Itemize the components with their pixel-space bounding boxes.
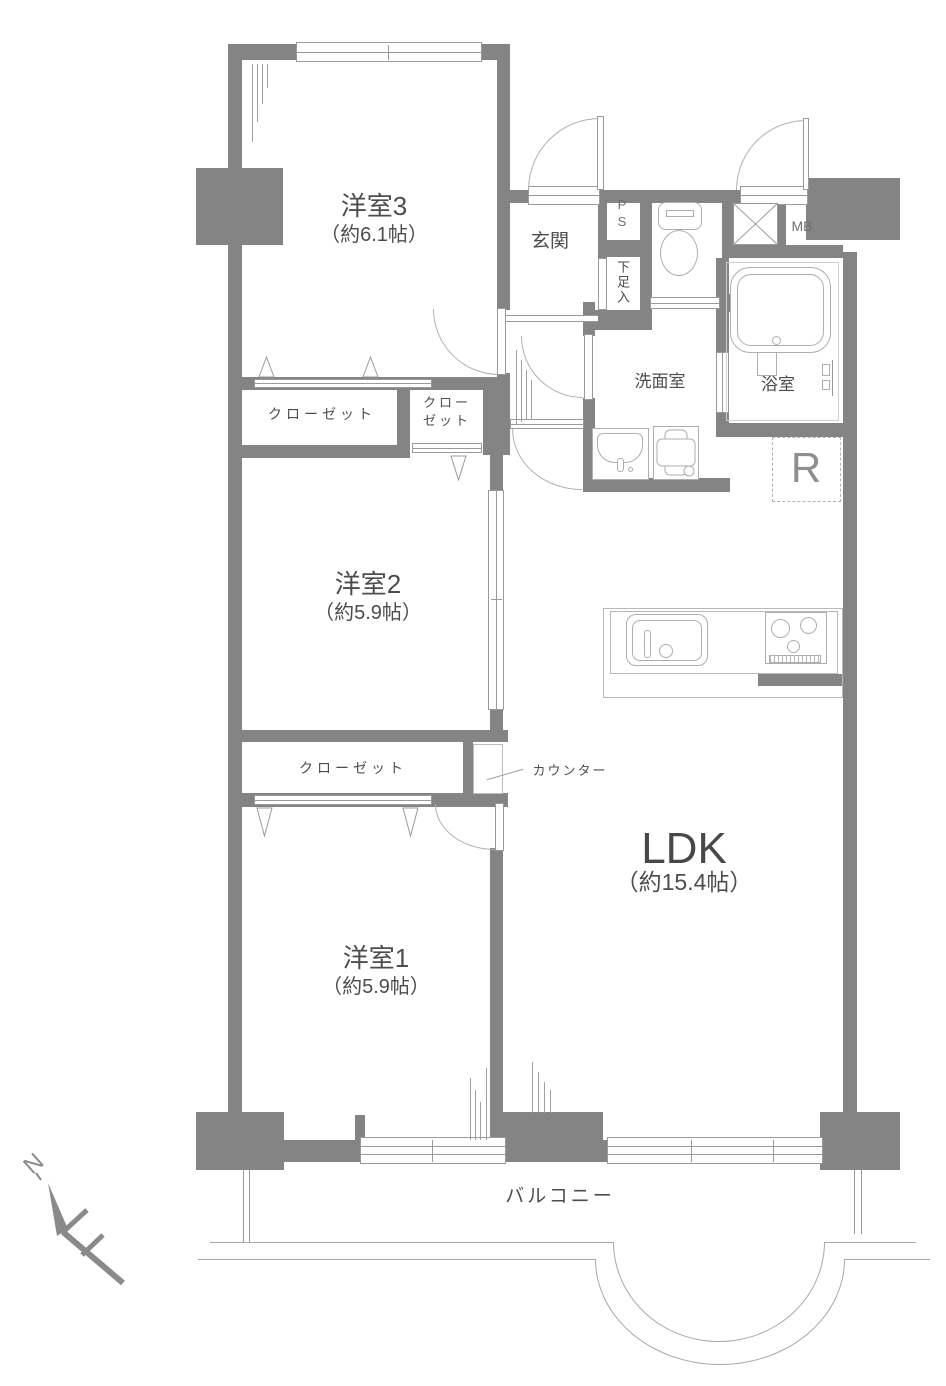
balcony-rail <box>210 1242 613 1243</box>
bathtub-drain <box>772 336 781 345</box>
bath-stool-fixture <box>757 352 777 376</box>
balcony-post-left <box>243 1170 250 1242</box>
blind-line <box>267 64 268 88</box>
washbasin-faucet <box>617 458 624 472</box>
room2-name-label: 洋室2 <box>335 570 401 600</box>
wall-right <box>843 252 857 1140</box>
closet-room2-label: クローゼット <box>299 760 407 776</box>
closet-small-label-line1: クロー <box>423 396 471 411</box>
closet-triangle-icon <box>362 356 379 378</box>
window-room3-top <box>296 42 482 62</box>
entrance-label: 玄関 <box>531 231 569 253</box>
kitchen-sink-drain <box>659 644 673 658</box>
pipe-space-label-s: S <box>618 215 627 230</box>
washroom-label: 洗面室 <box>635 372 686 392</box>
room1-name-label: 洋室1 <box>343 944 409 974</box>
wall-room3-right-upper <box>497 44 510 310</box>
wall-left-column <box>196 168 283 245</box>
stove-burner <box>800 617 817 634</box>
wall-bath-top <box>722 245 843 258</box>
wall-bath-bottom <box>716 423 843 437</box>
bathroom-label: 浴室 <box>761 375 795 395</box>
wall-room2-ldk-upper <box>490 455 503 490</box>
counter-label: カウンター <box>532 764 607 779</box>
wall-closet2-right <box>483 377 510 455</box>
toilet-tank-line <box>666 210 694 217</box>
balcony-rail <box>198 1259 595 1260</box>
wall-ps-right <box>640 190 652 330</box>
washbasin-knob <box>628 467 633 472</box>
blind-line <box>475 1090 476 1140</box>
room3-door-leaf <box>497 308 506 375</box>
wall-closet1-bottom <box>242 445 410 458</box>
shower-panel-fixture <box>822 380 830 390</box>
wall-corner-bottom-left <box>196 1112 284 1170</box>
balcony-rail <box>845 1259 930 1260</box>
entrance-step-line <box>504 315 598 322</box>
blind-line <box>521 360 522 422</box>
wall-room1-ldk <box>490 848 503 1140</box>
room1-door-leaf <box>495 803 504 851</box>
room1-size-label: （約5.9帖） <box>322 976 430 999</box>
shaft-x-icon <box>733 203 778 245</box>
blind-line <box>470 1078 471 1140</box>
stove-burner <box>787 640 800 653</box>
closet-room3-label: クローゼット <box>268 406 376 422</box>
floor-plan: N 洋室3 （約6.1帖） 洋室2 （約5.9帖） 洋室1 （約5.9帖） LD… <box>0 0 946 1386</box>
entrance-door-leaf <box>597 116 604 190</box>
closet-triangle-icon <box>402 807 419 837</box>
window-bottom-ldk <box>607 1137 823 1164</box>
balcony-bay-outer-arc <box>595 1259 845 1365</box>
closet-small-sliding-door <box>412 443 482 453</box>
closet-triangle-icon <box>258 356 275 378</box>
room3-name-label: 洋室3 <box>341 192 407 222</box>
pipe-space-label-p: P <box>618 198 627 213</box>
counter-box <box>473 744 503 794</box>
wall-bottom-center-stub <box>503 1112 603 1162</box>
blind-line <box>532 1062 533 1113</box>
blind-line <box>516 350 517 424</box>
refrigerator-space-label: R <box>791 444 821 492</box>
north-arrow-icon: N <box>15 1140 135 1300</box>
blind-line <box>480 1102 481 1140</box>
wall-corner-bottom-right <box>820 1112 900 1170</box>
bathtub-inner <box>737 274 824 346</box>
room2-ldk-sliding-door <box>488 490 504 710</box>
wall-ps-shoe-divider <box>598 240 652 257</box>
shower-rail-line <box>832 360 833 396</box>
shoe-cabinet-label: 下足入 <box>613 260 632 305</box>
closet-triangle-icon <box>256 807 273 837</box>
kitchen-faucet <box>644 630 651 658</box>
blind-line <box>531 380 532 420</box>
wall-washroom-bottom <box>583 478 730 492</box>
window-bottom-room1 <box>360 1137 506 1164</box>
ldk-door-arc <box>512 429 582 490</box>
blind-line <box>538 1072 539 1113</box>
washroom-door-leaf <box>584 334 593 400</box>
closet-room2-sliding-door <box>254 795 432 805</box>
entrance-door-arc <box>528 118 600 190</box>
blind-line <box>252 64 253 142</box>
wall-entrance-left <box>510 190 530 203</box>
blind-line <box>257 64 258 122</box>
stove-burner <box>771 619 790 638</box>
ldk-size-label: （約15.4帖） <box>616 869 753 895</box>
toilet-bowl-fixture <box>660 230 698 276</box>
mb-door-leaf <box>803 118 809 190</box>
compass-north-label: N <box>18 1148 49 1180</box>
blind-line <box>526 370 527 420</box>
room3-door-arc <box>433 309 499 375</box>
room3-size-label: （約6.1帖） <box>320 224 428 247</box>
blind-line <box>544 1082 545 1113</box>
closet-small-label-line2: ゼット <box>423 414 471 429</box>
blind-line <box>486 1068 487 1140</box>
shower-panel-fixture <box>822 364 830 376</box>
mb-door-arc <box>736 120 806 190</box>
room1-door-arc <box>435 804 495 850</box>
room2-size-label: （約5.9帖） <box>314 602 422 625</box>
blind-line <box>550 1090 551 1113</box>
toilet-sliding-door <box>650 297 720 309</box>
closet-triangle-icon <box>450 455 467 481</box>
wall-shoe-bottom <box>595 310 652 330</box>
washing-machine-pan-icon <box>653 426 699 480</box>
balcony-rail <box>825 1242 916 1243</box>
balcony-label: バルコニー <box>505 1186 615 1208</box>
meter-box-label: MB <box>792 218 813 234</box>
stove-grill <box>769 655 821 663</box>
balcony-post-right <box>854 1170 862 1234</box>
blind-line <box>262 64 263 104</box>
closet-room3-sliding-door <box>254 379 432 388</box>
ldk-name-label: LDK <box>641 824 727 875</box>
wall-top-right-block <box>806 178 900 240</box>
wall-room2-bottom <box>242 730 508 742</box>
shoe-cabinet-door <box>598 258 607 310</box>
